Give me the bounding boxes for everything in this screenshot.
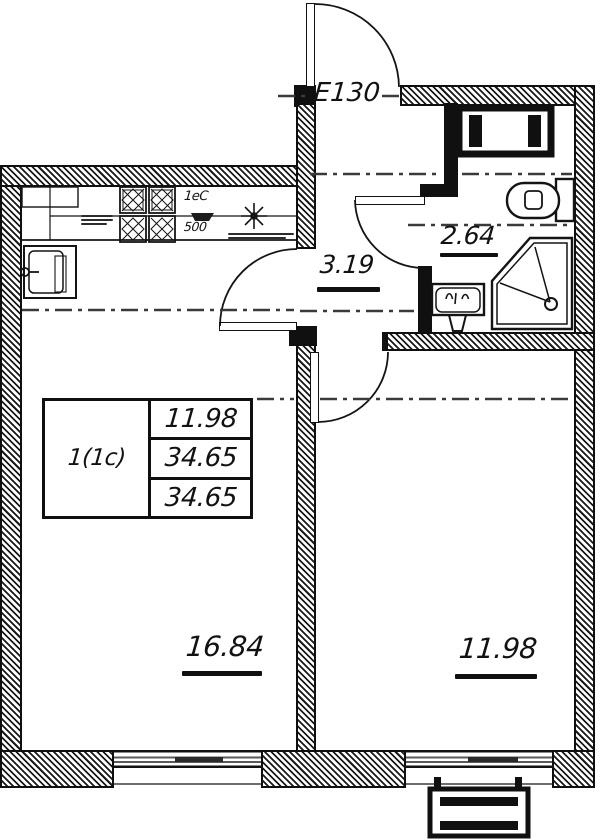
burner-icon xyxy=(149,187,175,213)
bedroom-door-leaf xyxy=(310,352,319,423)
wall-bottom-left xyxy=(0,750,114,788)
table-row: 34.65 xyxy=(151,437,250,476)
bathroom-door-leaf xyxy=(355,196,425,205)
kitchen-depth-label: 500 xyxy=(183,221,206,234)
bathroom-area-underline xyxy=(440,253,498,257)
window-outer-edge-left xyxy=(114,783,261,785)
entry-door-arc xyxy=(315,4,399,87)
bathroom-area-label: 2.64 xyxy=(440,223,496,248)
hall-area-label: 3.19 xyxy=(319,252,375,277)
kitchen-door-leaf xyxy=(219,322,297,331)
kitchen-sink xyxy=(21,246,76,298)
wall-bottom-right xyxy=(552,750,595,788)
illegible-annotation xyxy=(81,213,113,227)
hall-area-underline xyxy=(317,287,380,292)
toilet xyxy=(507,179,574,221)
door-arcs xyxy=(220,4,424,422)
burner-icon xyxy=(120,216,146,242)
total-area-value: 34.65 xyxy=(163,485,237,511)
washbasin xyxy=(432,284,484,331)
kitchen-door-arc xyxy=(220,249,297,326)
flat-type-label: 1(1с) xyxy=(67,447,126,470)
entry-door-leaf xyxy=(306,3,315,87)
wall-bath-partition-top xyxy=(444,103,458,187)
illegible-annotation xyxy=(228,231,294,241)
window-living-room xyxy=(114,750,261,768)
burner-icon xyxy=(120,187,146,213)
stove-burners-icon xyxy=(120,187,175,242)
table-row: 11.98 xyxy=(151,401,250,437)
wall-bath-partition-corner xyxy=(420,184,458,197)
window-outer-edge-right xyxy=(406,783,552,785)
shower-drain-icon xyxy=(545,298,557,310)
faucet-icon xyxy=(21,268,29,276)
wall-bath-partition-bottom xyxy=(418,266,432,334)
living-room-area-label: 16.84 xyxy=(185,633,265,661)
bedroom-area-label: 11.98 xyxy=(458,635,538,663)
wall-kitchen-north xyxy=(0,165,300,187)
bedroom-area-underline xyxy=(455,674,537,679)
apartment-area-value: 34.65 xyxy=(163,445,237,471)
wall-bath-south xyxy=(386,332,595,351)
unit-number-label: Е130 xyxy=(313,80,381,106)
wall-bottom-middle xyxy=(261,750,406,788)
wall-right-exterior xyxy=(574,85,595,788)
floor-plan: Е130 3.19 2.64 16.84 11.98 1еС 500 1(1с)… xyxy=(0,0,600,840)
bedroom-door-arc xyxy=(318,352,388,422)
table-row: 34.65 xyxy=(151,477,250,516)
wall-interior-upper xyxy=(296,103,316,249)
wall-left-exterior xyxy=(0,165,22,788)
window-bedroom xyxy=(406,750,552,768)
burner-icon xyxy=(149,216,175,242)
ac-basket xyxy=(430,777,528,836)
ventilation-fan-icon xyxy=(241,203,267,229)
living-room-area-underline xyxy=(182,671,262,676)
vent-shaft xyxy=(459,108,551,154)
apartment-summary-table: 1(1с) 11.98 34.65 34.65 xyxy=(42,398,253,519)
shower-cabin xyxy=(492,238,572,329)
wall-north-east xyxy=(400,85,595,106)
living-area-value: 11.98 xyxy=(163,406,237,432)
kitchen-unit-label: 1еС xyxy=(183,190,208,203)
